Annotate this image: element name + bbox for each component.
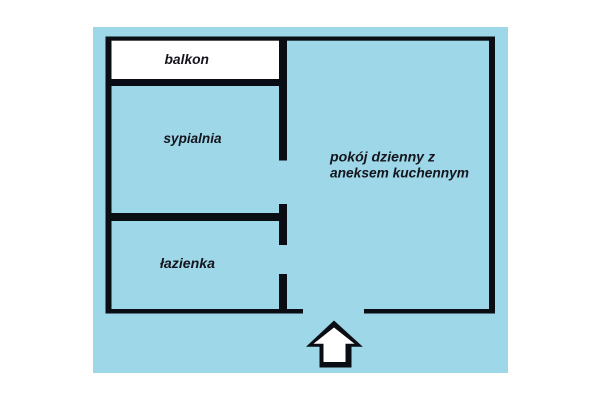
svg-text:sypialnia: sypialnia	[164, 130, 222, 146]
svg-text:balkon: balkon	[165, 51, 210, 67]
svg-text:łazienka: łazienka	[160, 255, 215, 271]
svg-text:pokój dzienny z: pokój dzienny z	[329, 149, 435, 165]
svg-text:aneksem kuchennym: aneksem kuchennym	[330, 165, 469, 181]
